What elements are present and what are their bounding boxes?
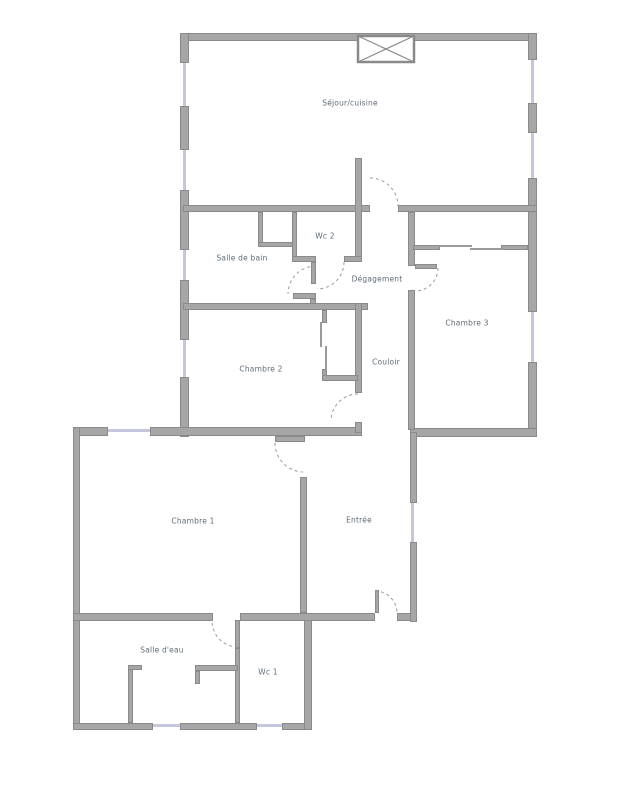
window-segment bbox=[411, 503, 414, 542]
wall-segment bbox=[304, 613, 312, 730]
door-arc-sejour bbox=[370, 178, 398, 206]
wall-segment bbox=[275, 436, 305, 442]
window-segment bbox=[108, 429, 150, 432]
wall-segment bbox=[235, 648, 240, 723]
wall-segment bbox=[128, 665, 142, 670]
wall-segment bbox=[183, 205, 370, 212]
wall-segment bbox=[240, 613, 375, 621]
wall-segment bbox=[73, 723, 153, 730]
wall-segment bbox=[528, 178, 537, 312]
door-arc-chambre3 bbox=[415, 268, 438, 291]
floorplan: Séjour/cuisine Wc 2 Salle de bain Dégage… bbox=[0, 0, 640, 800]
wall-segment bbox=[258, 242, 293, 247]
wall-segment bbox=[413, 245, 440, 250]
wall-segment bbox=[311, 262, 316, 284]
room-label-chambre3: Chambre 3 bbox=[445, 319, 488, 328]
wall-segment bbox=[300, 477, 307, 613]
wall-segment bbox=[235, 620, 240, 648]
wall-segment bbox=[355, 422, 362, 433]
door-arc-chambre2 bbox=[331, 394, 358, 421]
wall-segment bbox=[73, 613, 213, 621]
closet-door-panel bbox=[320, 322, 322, 347]
window-segment bbox=[183, 150, 186, 190]
door-arcs-layer bbox=[0, 0, 640, 800]
wall-segment bbox=[180, 280, 189, 340]
wall-segment bbox=[183, 303, 368, 310]
wall-segment bbox=[73, 427, 80, 730]
wall-segment bbox=[355, 158, 362, 262]
wall-segment bbox=[410, 432, 417, 503]
door-arc-chambre1 bbox=[275, 443, 303, 472]
wall-segment bbox=[415, 264, 437, 269]
wall-segment bbox=[410, 428, 537, 437]
wall-segment bbox=[258, 212, 263, 246]
wall-segment bbox=[180, 106, 189, 150]
room-label-wc1: Wc 1 bbox=[258, 668, 278, 677]
wall-segment bbox=[180, 190, 189, 250]
wall-segment bbox=[375, 590, 379, 613]
room-label-chambre2: Chambre 2 bbox=[239, 365, 282, 374]
window-segment bbox=[531, 60, 534, 103]
room-label-salle-deau: Salle d'eau bbox=[140, 646, 184, 655]
window-segment bbox=[531, 133, 534, 178]
window-segment bbox=[257, 724, 282, 727]
room-label-couloir: Couloir bbox=[372, 358, 400, 367]
closet-door-panel bbox=[470, 248, 504, 250]
wall-segment bbox=[180, 33, 537, 41]
closet-door-panel bbox=[438, 245, 472, 247]
wall-segment bbox=[195, 665, 238, 671]
wall-segment bbox=[292, 212, 297, 262]
window-segment bbox=[183, 250, 186, 280]
wall-segment bbox=[528, 103, 537, 133]
room-label-salle-de-bain: Salle de bain bbox=[216, 254, 267, 263]
wall-segment bbox=[408, 290, 415, 430]
window-segment bbox=[183, 63, 186, 106]
wall-segment bbox=[344, 256, 362, 262]
wall-segment bbox=[180, 723, 257, 730]
door-arc-wc2 bbox=[317, 262, 344, 289]
room-label-chambre1: Chambre 1 bbox=[171, 517, 214, 526]
window-segment bbox=[183, 340, 186, 377]
room-label-entree: Entrée bbox=[346, 516, 372, 525]
wall-segment bbox=[410, 542, 417, 622]
wall-segment bbox=[528, 33, 537, 60]
wall-segment bbox=[322, 310, 327, 323]
wall-segment bbox=[322, 375, 358, 381]
wall-segment bbox=[528, 362, 537, 437]
wall-segment bbox=[150, 427, 362, 436]
wall-segment bbox=[501, 245, 528, 250]
window-segment bbox=[153, 724, 180, 727]
wall-segment bbox=[195, 671, 200, 684]
wall-segment bbox=[128, 665, 133, 723]
window-segment bbox=[531, 312, 534, 362]
room-label-wc2: Wc 2 bbox=[315, 232, 335, 241]
wall-segment bbox=[180, 33, 189, 63]
closet-door-panel bbox=[325, 346, 327, 371]
room-label-degagement: Dégagement bbox=[352, 275, 403, 284]
room-label-sejour: Séjour/cuisine bbox=[322, 99, 378, 108]
wall-segment bbox=[398, 205, 537, 212]
wall-segment bbox=[408, 212, 415, 266]
